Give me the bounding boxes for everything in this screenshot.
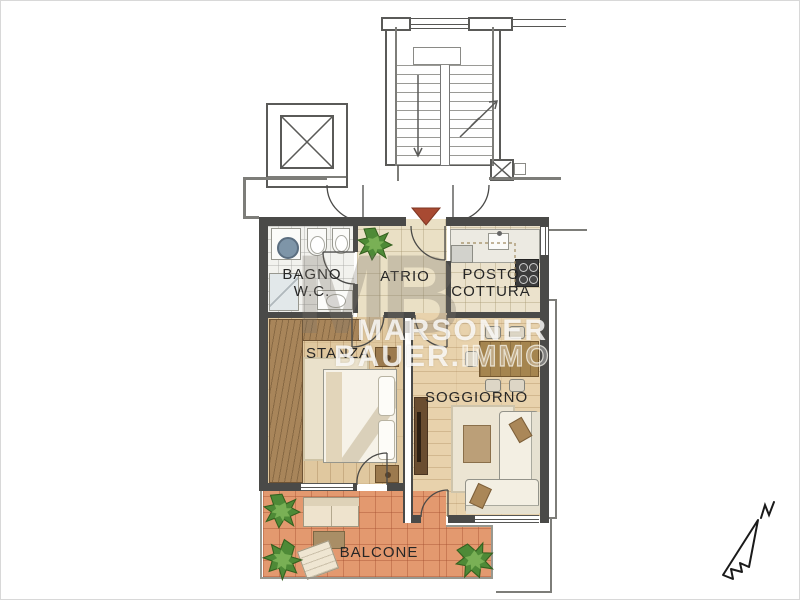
wall-top xyxy=(259,217,406,226)
stairs-center-rail xyxy=(440,61,450,166)
landing-door-arc xyxy=(453,185,489,221)
dining-chair xyxy=(485,326,501,339)
balcony-parapet xyxy=(491,525,493,579)
floor-plan-canvas: N BAGNO W.C. ATRIO POSTO COTTURA STANZA … xyxy=(0,0,800,600)
kitchen-window xyxy=(540,227,549,255)
wall-bagno-atrio xyxy=(353,284,358,313)
nightstand xyxy=(375,347,399,367)
seat-divider xyxy=(331,506,332,526)
neighbor-wall-line xyxy=(555,299,557,519)
stanza-label: STANZA xyxy=(298,346,378,362)
wall-left xyxy=(259,217,268,491)
nightstand xyxy=(375,465,399,483)
posto-cottura-label: POSTO xyxy=(451,267,531,283)
neighbor-wall-line xyxy=(550,519,552,593)
neighbor-wall-line xyxy=(549,229,587,231)
soggiorno-label: SOGGIORNO xyxy=(425,390,525,406)
stairwell-wall-line xyxy=(492,27,494,166)
landing-wall xyxy=(243,216,259,219)
elevator-car xyxy=(280,115,334,169)
bed-runner xyxy=(326,372,342,462)
bagno-label-2: W.C. xyxy=(272,284,352,300)
duct-notch xyxy=(514,163,526,175)
washer-drum xyxy=(277,237,299,259)
wall-mid xyxy=(447,312,549,318)
kitchen-sink xyxy=(488,233,509,250)
wardrobe xyxy=(269,319,303,483)
bidet-bowl xyxy=(335,235,348,252)
bagno-label: BAGNO xyxy=(272,267,352,283)
landing-wall xyxy=(489,177,561,180)
wall-right xyxy=(540,217,549,227)
north-arrow-icon: N xyxy=(723,502,778,579)
balcone-label: BALCONE xyxy=(331,545,427,561)
stairwell-stub xyxy=(397,166,399,181)
wall-partition xyxy=(403,318,413,523)
stairwell-wall-block xyxy=(468,17,513,31)
dining-chair xyxy=(509,326,525,339)
neighbor-wall-line xyxy=(513,19,566,27)
dining-table xyxy=(479,341,539,377)
tv-screen xyxy=(417,412,421,462)
balcony-parapet xyxy=(260,577,493,579)
knob xyxy=(385,355,391,361)
pillow xyxy=(378,420,395,460)
faucet xyxy=(497,231,502,236)
double-bed xyxy=(323,369,397,463)
atrio-label: ATRIO xyxy=(365,269,445,285)
toilet-bowl xyxy=(310,236,325,254)
posto-cottura-label-2: COTTURA xyxy=(451,284,531,300)
dining-chair xyxy=(465,351,478,367)
wall-right xyxy=(540,255,549,523)
neighbor-wall-line xyxy=(496,591,552,593)
bidet xyxy=(332,228,350,254)
washing-machine xyxy=(271,228,301,260)
landing-wall xyxy=(243,177,327,180)
wall-stanza-bottom xyxy=(259,483,301,491)
balcony-parapet xyxy=(446,525,493,527)
stairs-landing xyxy=(413,47,461,65)
wall-mid xyxy=(265,312,352,318)
landing-wall xyxy=(243,177,246,219)
balcone-floor-ext xyxy=(446,527,491,577)
wall-soggiorno-bottom xyxy=(448,515,475,523)
balcony-parapet xyxy=(260,491,262,579)
coffee-table xyxy=(463,425,491,463)
pillow xyxy=(378,376,395,416)
tv-sideboard xyxy=(414,397,428,475)
knob xyxy=(385,472,391,478)
kitchen-cabinet xyxy=(451,245,473,263)
wall-bagno-atrio xyxy=(353,223,358,252)
wall-top xyxy=(446,217,549,226)
toilet xyxy=(307,228,327,256)
outdoor-sofa xyxy=(303,497,359,527)
north-label: N xyxy=(777,512,778,514)
stanza-window xyxy=(301,483,353,491)
outdoor-sofa-back xyxy=(304,498,359,506)
wall-stanza-bottom xyxy=(353,483,357,491)
soggiorno-window xyxy=(475,515,539,523)
landing-door-arc xyxy=(327,185,363,221)
stairwell-wall-line xyxy=(395,27,397,166)
stairwell-window xyxy=(411,18,468,29)
